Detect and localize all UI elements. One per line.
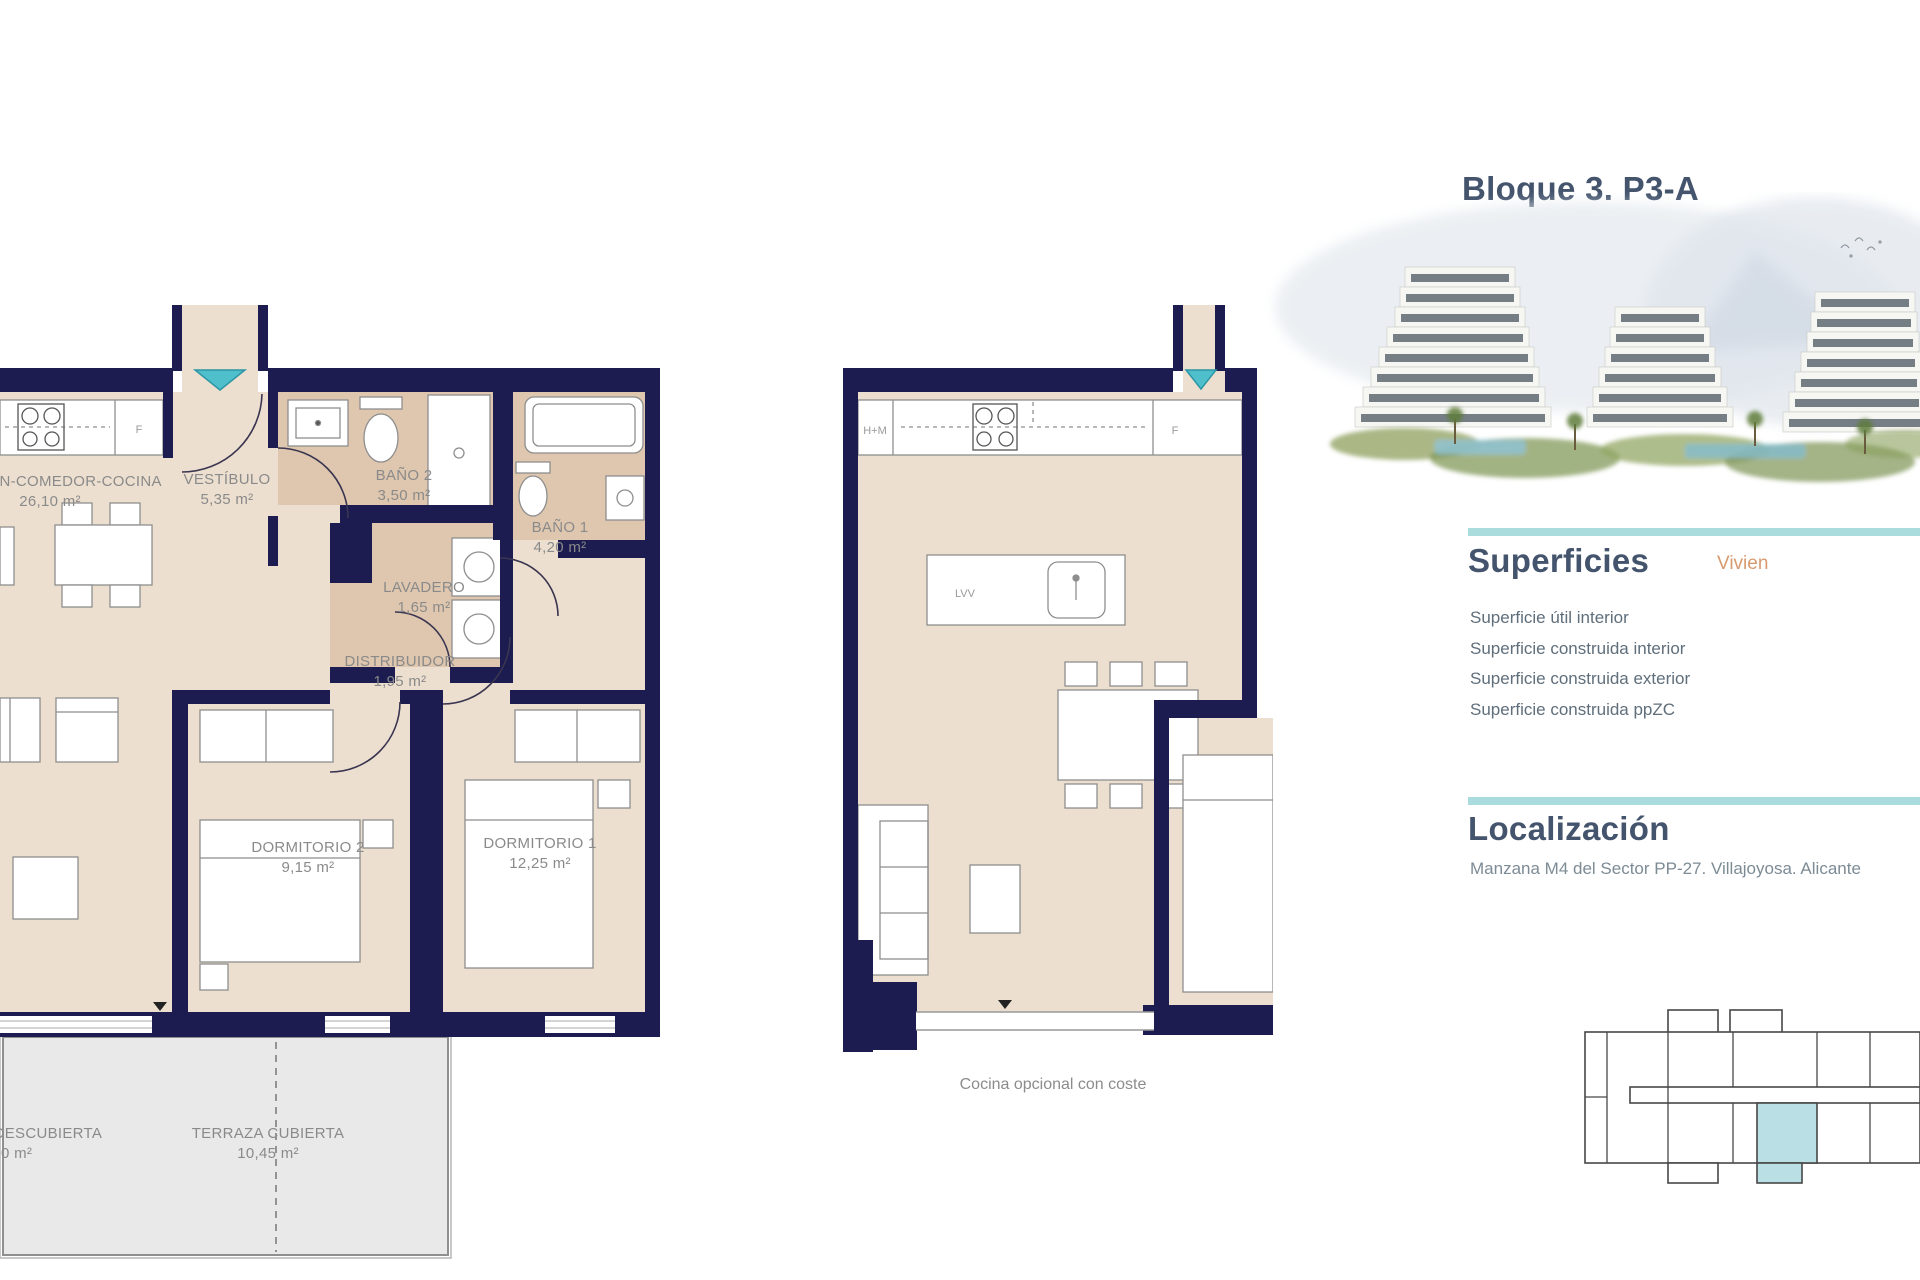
toilet-tank [516,462,550,473]
site-tower-tab [1668,1010,1718,1034]
room-label-bano2: BAÑO 2 [376,467,433,484]
pool-2 [1685,444,1805,458]
bathtub-icon [525,397,643,453]
fridge-label: F [136,424,143,436]
room-label-bano1: BAÑO 1 [532,519,589,536]
site-highlighted-unit [1757,1103,1817,1163]
superficies-row: Superficie construida interior [1470,639,1685,659]
superficies-heading: Superficies [1468,542,1649,580]
bed-partial [1183,755,1273,992]
site-corridor-spine [1630,1087,1920,1103]
room-label-distribuidor: DISTRIBUIDOR [344,653,455,670]
dining-table [55,525,152,585]
section-divider-bar [1468,797,1920,805]
coffee-table [13,857,78,919]
coffee-table [970,865,1020,933]
room-label-dormitorio2: DORMITORIO 2 [251,839,364,856]
armchair [0,698,40,762]
section-divider-bar [1468,528,1920,536]
fridge-label: F [1172,425,1179,437]
pool-1 [1435,440,1525,454]
site-key-plan [1570,995,1920,1195]
room-area-terraza-descubierta: 0 m² [1,1145,32,1162]
superficies-row: Superficie construida exterior [1470,669,1690,689]
localizacion-address: Manzana M4 del Sector PP-27. Villajoyosa… [1470,859,1861,879]
garden-wash [1330,428,1920,482]
room-label-salon: SALÓN-COMEDOR-COCINA [0,473,162,490]
room-area-distribuidor: 1,95 m² [374,673,427,690]
room-label-vestibulo: VESTÍBULO [184,471,271,488]
floor-plan-main: SALÓN-COMEDOR-COCINA 26,10 m² VESTÍBULO … [0,300,665,1260]
site-tab-bottom [1668,1163,1718,1183]
room-area-lavadero: 1,65 m² [398,599,451,616]
superficies-column-label: Vivien [1717,553,1768,575]
terrace-area [0,1034,451,1258]
nightstand [200,964,228,990]
building-rendering [1255,192,1920,522]
brochure-page: { "title": "Bloque 3. P3-A", "superficie… [0,0,1920,1280]
room-area-terraza-cubierta: 10,45 m² [237,1145,299,1162]
kitchen-counter [858,400,1242,455]
nightstand [363,820,393,848]
optional-kitchen-caption: Cocina opcional con coste [938,1076,1168,1094]
armchair [56,698,118,762]
terrace-window-line [916,1012,1154,1030]
room-area-salon: 26,10 m² [19,493,81,510]
toilet-icon [519,476,547,516]
superficies-row: Superficie útil interior [1470,608,1629,628]
hm-label: H+M [863,425,887,437]
dryer-icon [452,600,506,658]
toilet-tank [360,397,402,409]
room-label-dormitorio1: DORMITORIO 1 [483,835,596,852]
dishwasher-label: LVV [955,588,976,600]
floor-plan-optional-kitchen: H+M F LVV [843,300,1273,1100]
nightstand [598,780,630,808]
room-area-bano2: 3,50 m² [378,487,431,504]
room-label-lavadero: LAVADERO [383,579,465,596]
bed-double [465,780,593,968]
sideboard [0,527,14,585]
washbasin-icon [606,476,644,520]
toilet-icon [364,414,398,462]
superficies-row: Superficie construida ppZC [1470,700,1675,720]
localizacion-heading: Localización [1468,810,1670,848]
room-area-bano1: 4,20 m² [534,539,587,556]
room-area-dormitorio2: 9,15 m² [282,859,335,876]
room-label-terraza-cubierta: TERRAZA CUBIERTA [192,1125,345,1142]
site-highlighted-unit-balcony [1757,1163,1802,1183]
room-label-terraza-descubierta: TERRAZA DESCUBIERTA [0,1125,102,1142]
room-area-vestibulo: 5,35 m² [201,491,254,508]
room-area-dormitorio1: 12,25 m² [509,855,571,872]
site-tower-tab [1730,1010,1782,1034]
